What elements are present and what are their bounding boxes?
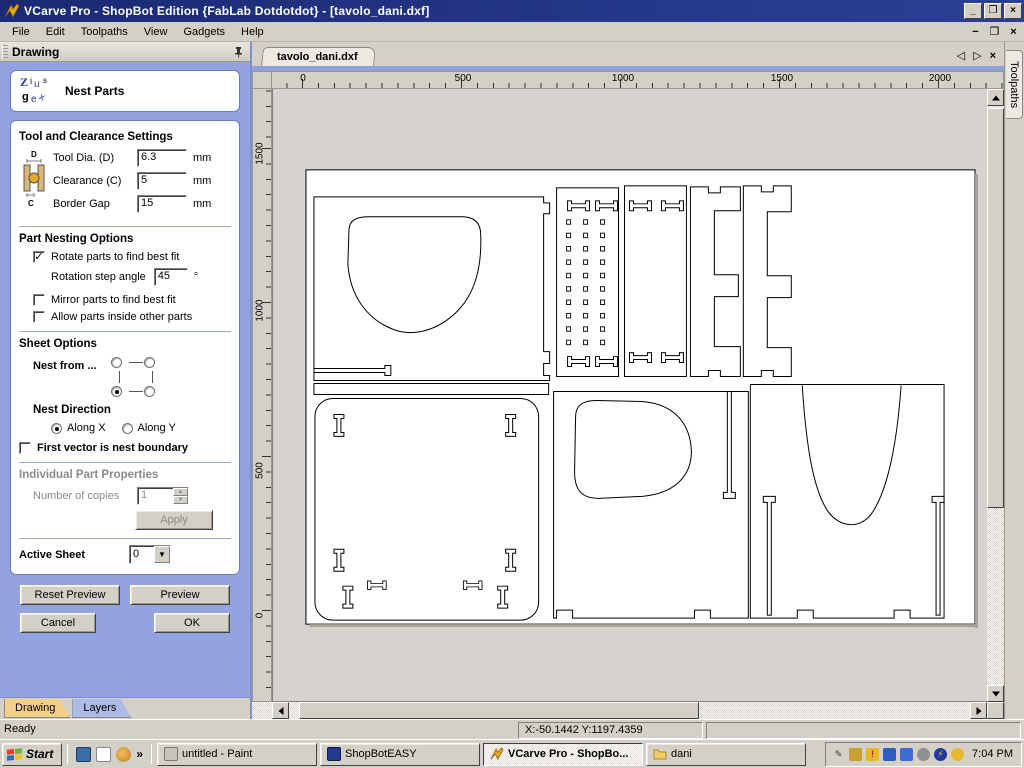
tool-diagram-icon: D C [19,149,49,218]
close-icon: × [1010,6,1016,16]
show-desktop-icon[interactable] [76,747,91,762]
copies-value[interactable]: 1 [138,488,173,504]
dropdown-arrow-icon: ▼ [154,546,170,563]
stylus-icon[interactable]: ✎ [832,748,845,761]
quick-launch-chevron-icon[interactable]: » [136,747,143,761]
allow-inside-label: Allow parts inside other parts [51,311,192,323]
copies-label: Number of copies [33,490,137,502]
menu-edit[interactable]: Edit [38,24,73,40]
mirror-parts-checkbox[interactable] [33,294,45,306]
along-y-label: Along Y [138,422,176,434]
panel-header-title: Drawing [12,45,233,59]
vertical-scroll-thumb[interactable] [987,108,1004,508]
clearance-label: Clearance (C) [53,175,137,187]
nest-from-top-left-radio[interactable] [111,357,122,368]
minimize-icon: _ [970,6,976,16]
rotation-step-unit: ° [194,271,198,283]
nest-direction-title: Nest Direction [33,404,231,416]
system-tray: ✎ ! ⚡ 7:04 PM [825,742,1022,767]
tool-dia-input[interactable]: 6.3 [137,149,187,167]
window-icon[interactable] [96,747,111,762]
tab-close-icon[interactable]: × [990,50,996,62]
along-x-radio[interactable] [51,423,62,434]
scroll-up-button[interactable] [987,89,1004,106]
rotate-parts-label: Rotate parts to find best fit [51,251,179,263]
task-dani-folder[interactable]: dani [646,743,806,766]
scroll-up-icon [992,95,1000,100]
active-sheet-label: Active Sheet [19,549,129,561]
task-shopboteasy[interactable]: ShopBotEASY [320,743,480,766]
apply-button[interactable]: Apply [135,510,213,530]
v-ruler-label: 500 [255,456,266,486]
sheet-options-title: Sheet Options [19,338,231,350]
border-gap-label: Border Gap [53,198,137,210]
scroll-down-button[interactable] [987,685,1004,702]
application-window: VCarve Pro - ShopBot Edition {FabLab Dot… [0,0,1024,768]
rotate-parts-checkbox[interactable]: ✓ [33,251,45,263]
nest-parts-title-card: Z i u s g e x Nest Parts [10,70,240,112]
windows-logo-icon [7,748,22,761]
tab-layers[interactable]: Layers [72,699,131,718]
status-bar: Ready X:-50.1442 Y:1197.4359 [0,719,1024,739]
svg-text:u: u [34,79,40,90]
preview-button[interactable]: Preview [130,585,230,605]
svg-text:C: C [28,199,34,207]
menu-bar: File Edit Toolpaths View Gadgets Help − … [0,22,1024,42]
separator [19,538,231,539]
horizontal-scrollbar[interactable] [252,702,1004,719]
canvas-column: tavolo_dani.dxf ◁ ▷ × 0 500 1000 1500 20… [252,42,1004,719]
clearance-unit: mm [193,175,211,187]
scroll-corner [987,702,1004,719]
tab-toolpaths[interactable]: Toolpaths [1006,50,1023,119]
nest-from-grid [113,356,159,398]
app-icon [4,3,20,19]
nest-from-label: Nest from ... [33,360,97,372]
spin-up-icon[interactable]: ▲ [173,488,188,496]
tool-clearance-title: Tool and Clearance Settings [19,131,231,143]
svg-text:D: D [31,150,37,159]
nest-from-top-right-radio[interactable] [144,357,155,368]
dash [152,371,153,383]
cancel-button[interactable]: Cancel [20,613,96,633]
rotation-step-label: Rotation step angle [51,271,146,283]
scroll-right-icon [976,707,981,715]
taskbar: Start » untitled - Paint ShopBotEASY VCa… [0,739,1024,768]
pin-icon[interactable] [233,46,244,58]
vertical-ruler: 1500 1000 500 0 [252,89,272,702]
border-gap-input[interactable]: 15 [137,195,187,213]
mdi-restore-button[interactable]: ❐ [986,24,1003,39]
horizontal-scroll-thumb[interactable] [299,702,699,719]
panel-tab-strip: Drawing Layers [0,697,250,719]
ok-button[interactable]: OK [154,613,230,633]
scroll-left-button[interactable] [272,702,289,719]
separator [19,462,231,463]
reset-preview-button[interactable]: Reset Preview [20,585,120,605]
mdi-close-button[interactable]: × [1005,24,1022,39]
scroll-down-icon [992,691,1000,696]
individual-part-title: Individual Part Properties [19,469,231,481]
clearance-input[interactable]: 5 [137,172,187,190]
active-sheet-value: 0 [130,546,154,563]
ruler-corner [252,71,272,89]
copies-spinner: 1 ▲ ▼ [137,487,189,505]
vcarve-icon [490,747,504,761]
sheet-outline [306,170,975,624]
menu-view[interactable]: View [136,24,176,40]
language-bar-icon[interactable] [849,748,862,761]
menu-gadgets[interactable]: Gadgets [175,24,233,40]
audio-icon[interactable] [900,748,913,761]
dash [129,391,143,392]
vertical-scrollbar[interactable] [987,89,1004,702]
active-sheet-dropdown[interactable]: 0 ▼ [129,545,171,564]
spin-down-icon[interactable]: ▼ [173,496,188,504]
drawing-panel: Drawing Z i u s g e [0,42,252,719]
nest-parts-title: Nest Parts [65,84,124,98]
right-tab-strip: Toolpaths [1004,42,1024,719]
nested-parts-drawing [273,89,987,701]
nest-parts-panel: Z i u s g e x Nest Parts Tool and Cleara… [0,62,250,697]
drawing-canvas[interactable] [272,89,987,702]
horizontal-ruler: 0 500 1000 1500 2000 [272,71,1004,89]
scroll-left-icon [278,707,283,715]
drawing-panel-header: Drawing [0,42,250,62]
restore-button[interactable]: ❐ [984,3,1002,19]
title-bar: VCarve Pro - ShopBot Edition {FabLab Dot… [0,0,1024,22]
minimize-button[interactable]: _ [964,3,982,19]
svg-text:Z: Z [20,75,28,89]
v-ruler-label: 1500 [255,139,266,169]
mdi-minimize-button[interactable]: − [967,24,984,39]
tab-prev-icon[interactable]: ◁ [957,49,965,62]
scroll-right-button[interactable] [970,702,987,719]
v-ruler-label: 0 [255,601,266,631]
menu-file[interactable]: File [4,24,38,40]
dash [129,362,143,363]
svg-text:i: i [30,76,32,86]
window-title: VCarve Pro - ShopBot Edition {FabLab Dot… [24,4,964,18]
border-gap-unit: mm [193,198,211,210]
restore-icon: ❐ [989,6,998,16]
along-y-radio[interactable] [122,423,133,434]
tool-dia-label: Tool Dia. (D) [53,152,137,164]
updates-icon[interactable] [951,748,964,761]
h-ruler-label: 1500 [771,73,793,84]
tab-navigation: ◁ ▷ × [957,49,1004,66]
shopbot-icon [327,747,341,761]
nest-parts-icon: Z i u s g e x [19,74,53,109]
nest-from-bottom-right-radio[interactable] [144,386,155,397]
browser-globe-icon[interactable] [116,747,131,762]
menu-help[interactable]: Help [233,24,272,40]
status-extra-cell [706,722,1021,739]
taskbar-separator [67,744,68,764]
paint-icon [164,747,178,761]
task-vcarve[interactable]: VCarve Pro - ShopBo... [483,743,643,766]
canvas-content-row: 1500 1000 500 0 [252,89,1004,702]
security-alert-shield-icon[interactable]: ! [866,748,879,761]
status-coordinates: X:-50.1442 Y:1197.4359 [518,722,703,739]
h-ruler-label: 1000 [612,73,634,84]
svg-text:g: g [22,91,29,103]
task-paint[interactable]: untitled - Paint [157,743,317,766]
menu-toolpaths[interactable]: Toolpaths [73,24,136,40]
dash [119,371,120,383]
status-ready: Ready [0,722,515,739]
close-button[interactable]: × [1004,3,1022,19]
tab-drawing[interactable]: Drawing [4,699,70,718]
document-tab-row: tavolo_dani.dxf ◁ ▷ × [252,42,1004,66]
quick-launch: » [73,747,146,762]
taskbar-clock: 7:04 PM [972,748,1013,760]
main-area: Drawing Z i u s g e [0,42,1024,719]
mdi-restore-icon: ❐ [990,25,1000,38]
mdi-close-icon: × [1010,26,1016,38]
taskbar-separator [151,744,152,764]
panel-grip[interactable] [2,45,8,59]
settings-card: Tool and Clearance Settings D C [10,120,240,575]
mirror-parts-label: Mirror parts to find best fit [51,294,176,306]
part-nesting-title: Part Nesting Options [19,233,231,245]
allow-inside-checkbox[interactable] [33,311,45,323]
rotation-step-input[interactable]: 45 [154,268,188,286]
ruler-row: 0 500 1000 1500 2000 [252,71,1004,89]
disabled-device-icon[interactable] [917,748,930,761]
start-button[interactable]: Start [2,743,62,766]
tool-dia-unit: mm [193,152,211,164]
first-vector-label: First vector is nest boundary [37,442,188,454]
nest-from-bottom-left-radio[interactable] [111,386,122,397]
power-icon[interactable]: ⚡ [934,748,947,761]
along-x-label: Along X [67,422,106,434]
v-ruler-label: 1000 [255,296,266,326]
panel-buttons: Reset Preview Preview Cancel OK [10,575,240,645]
svg-text:s: s [43,76,47,85]
svg-text:e: e [31,94,37,105]
document-tab[interactable]: tavolo_dani.dxf [261,47,376,66]
tab-next-icon[interactable]: ▷ [973,49,981,62]
folder-icon [653,747,667,761]
network-icon[interactable] [883,748,896,761]
svg-text:x: x [37,91,46,103]
mdi-minimize-icon: − [972,26,978,38]
h-ruler-label: 0 [300,73,306,84]
h-ruler-label: 2000 [929,73,951,84]
separator [19,226,231,227]
separator [19,331,231,332]
h-ruler-label: 500 [455,73,472,84]
first-vector-checkbox[interactable] [19,442,31,454]
